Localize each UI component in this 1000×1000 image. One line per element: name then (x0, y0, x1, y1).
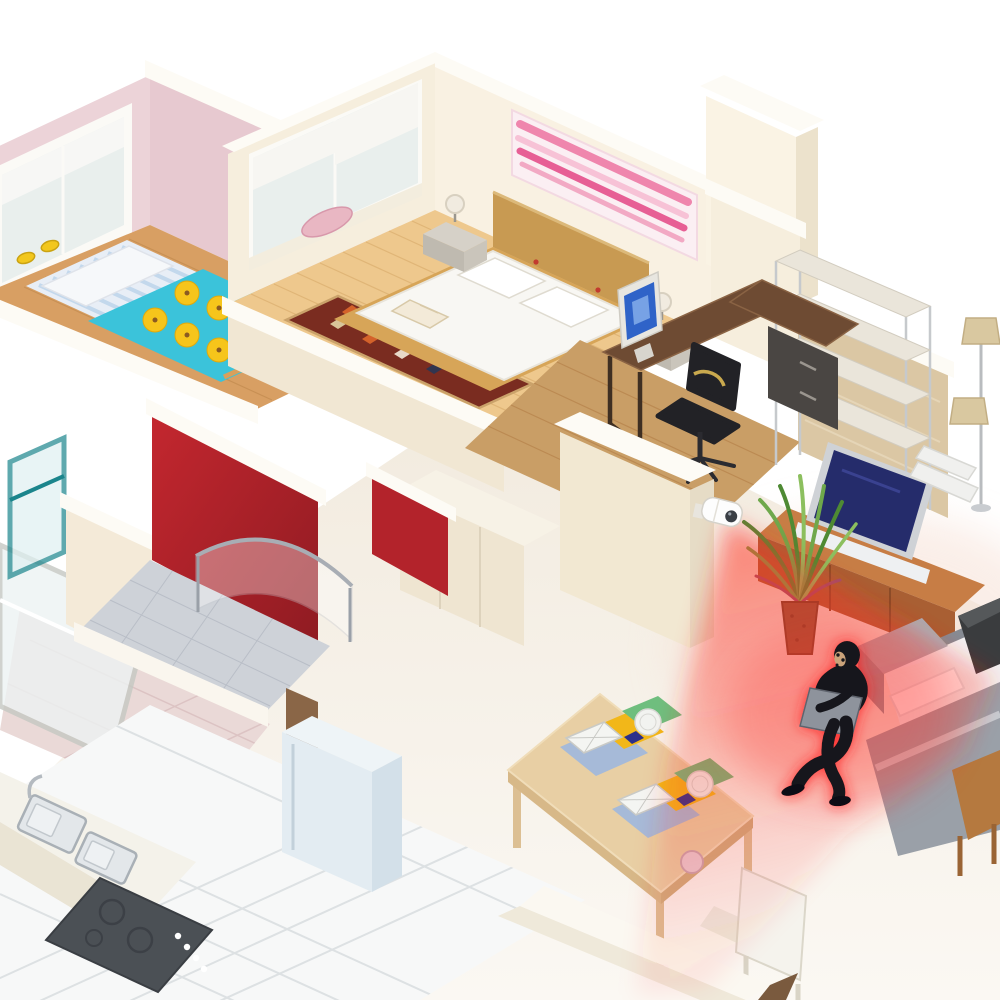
burglar-eye-2 (841, 658, 844, 661)
apartment-security-illustration (0, 0, 1000, 1000)
burglar-mouth (836, 664, 839, 667)
lamp-shade-lower (950, 398, 988, 424)
lamp-left (446, 195, 464, 213)
lamp-base (971, 504, 991, 512)
plate-1 (635, 709, 661, 735)
bed-red-accent-2 (595, 287, 600, 292)
isometric-scene (0, 0, 1000, 1000)
burglar-eye-1 (836, 653, 839, 656)
bed-red-accent-1 (533, 259, 538, 264)
balcony-teal-railing (10, 438, 64, 576)
lamp-shade-top (962, 318, 1000, 344)
